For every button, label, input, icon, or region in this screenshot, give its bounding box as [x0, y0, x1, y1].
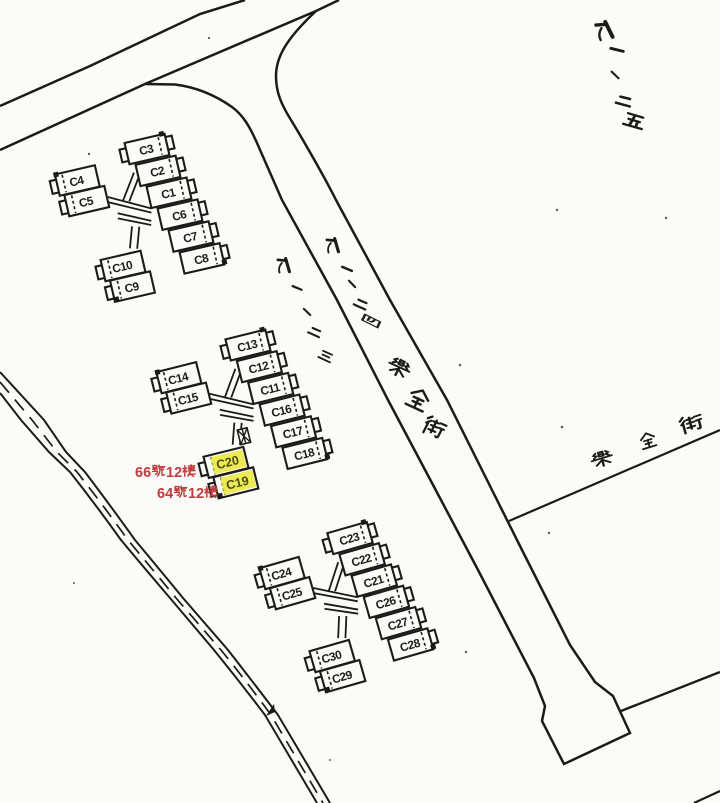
svg-text:12: 12	[188, 486, 204, 502]
svg-text:64: 64	[157, 486, 173, 502]
svg-text:12: 12	[166, 465, 182, 481]
svg-text:66: 66	[135, 465, 151, 481]
